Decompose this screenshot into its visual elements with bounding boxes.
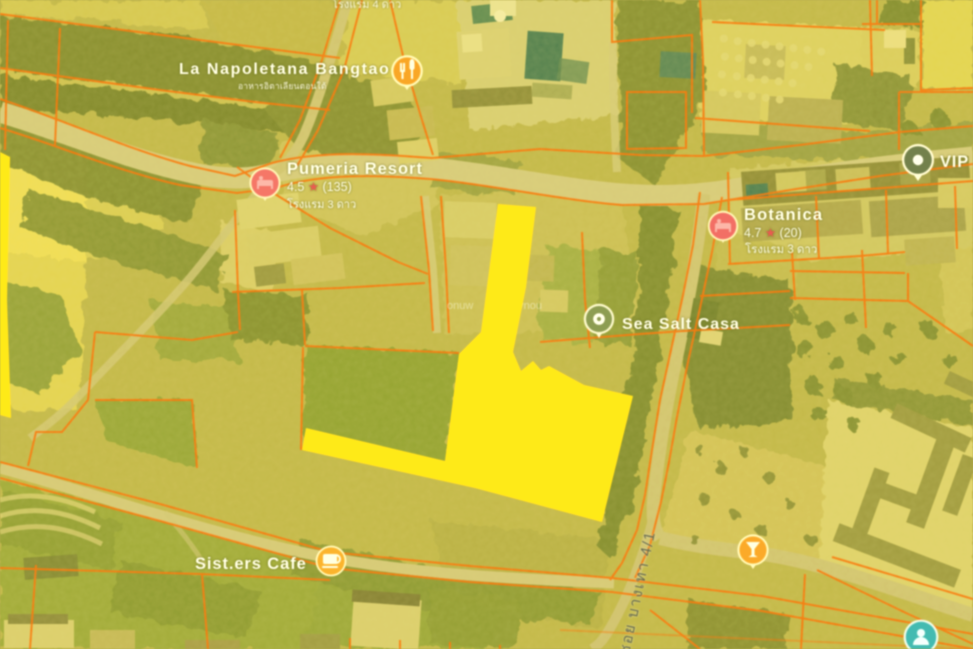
- svg-text:โรงแรม 4 ดาว: โรงแรม 4 ดาว: [332, 0, 401, 11]
- svg-text:onuw: onuw: [447, 300, 473, 312]
- svg-text:Sist.ers Cafe: Sist.ers Cafe: [195, 555, 307, 573]
- svg-text:Botanica: Botanica: [744, 206, 823, 224]
- svg-text:โรงแรม 3 ดาว: โรงแรม 3 ดาว: [745, 242, 817, 256]
- svg-text:โรงแรม 3 ดาว: โรงแรม 3 ดาว: [287, 197, 356, 211]
- svg-text:อาหารอิตาเลียนตอนใต้: อาหารอิตาเลียนตอนใต้: [238, 81, 327, 91]
- svg-text:4.5 ★ (135): 4.5 ★ (135): [287, 180, 352, 194]
- svg-text:4.7 ★ (20): 4.7 ★ (20): [744, 226, 802, 240]
- svg-text:Pumeria Resort: Pumeria Resort: [287, 160, 423, 178]
- svg-text:La Napoletana Bangtao: La Napoletana Bangtao: [179, 61, 390, 78]
- svg-text:Sea Salt Casa: Sea Salt Casa: [622, 316, 740, 333]
- svg-text:VIP: VIP: [940, 153, 969, 171]
